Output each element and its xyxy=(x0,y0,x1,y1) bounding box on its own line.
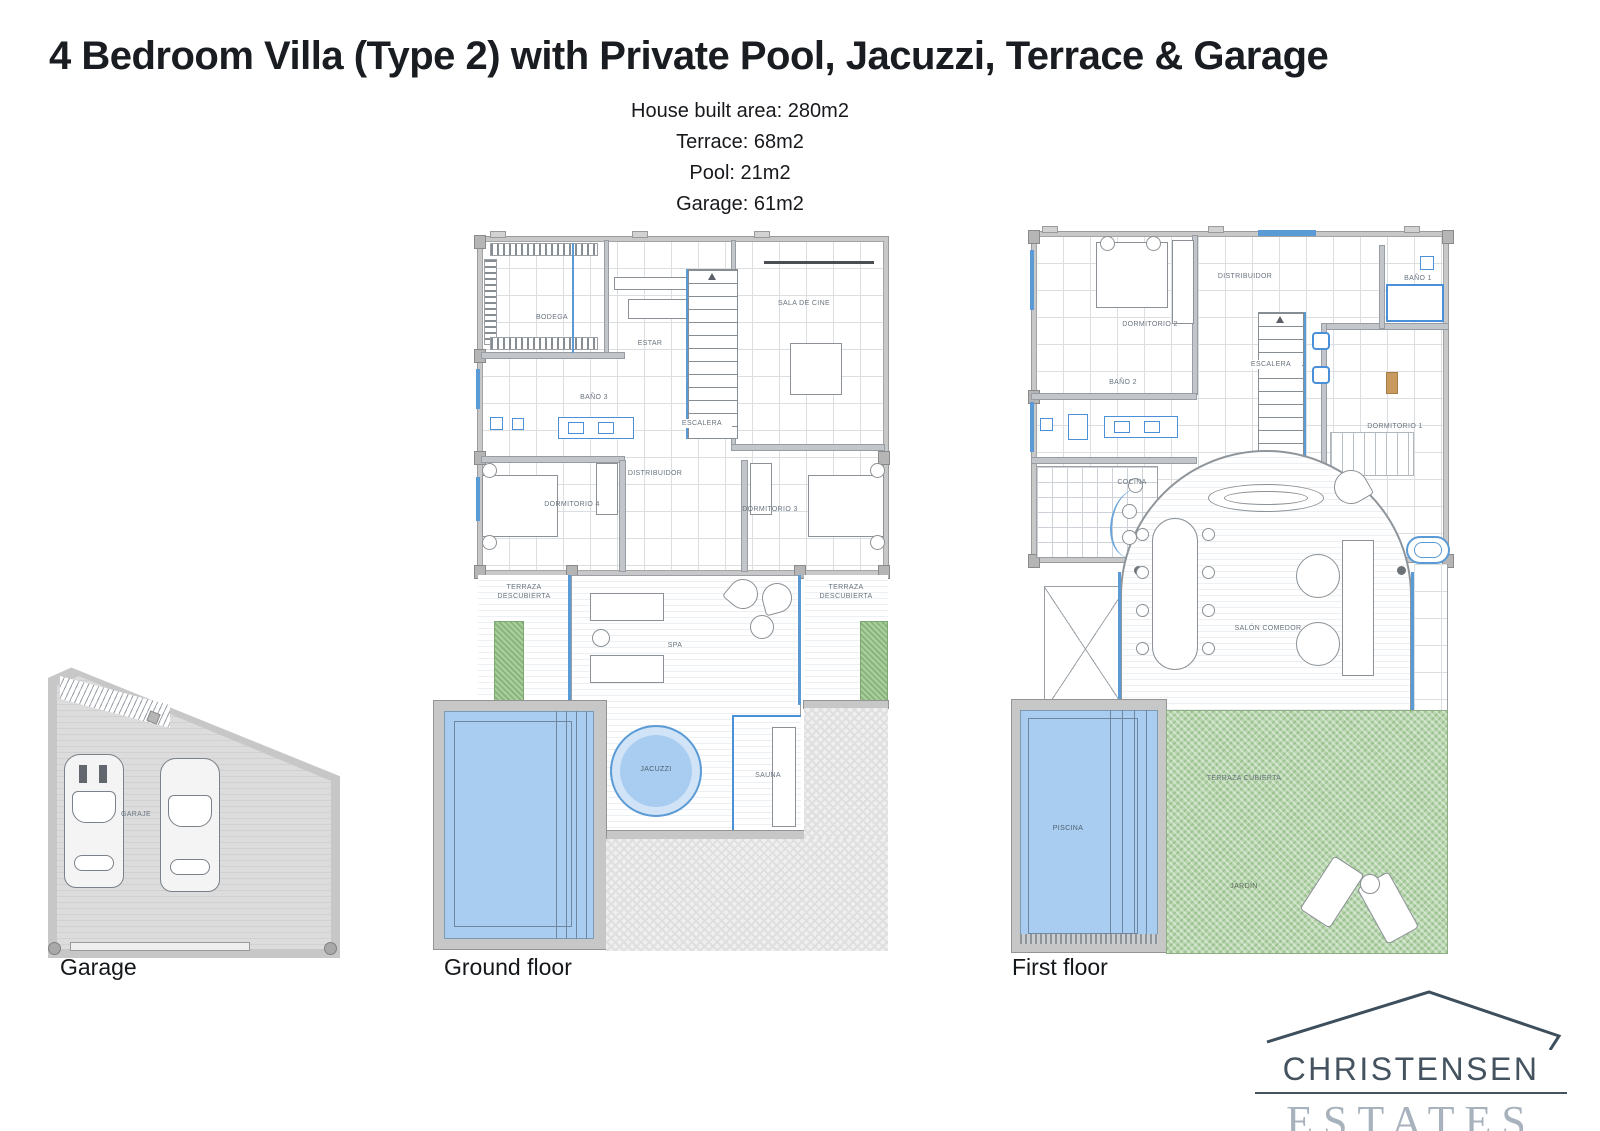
chair xyxy=(1202,566,1215,579)
bidet xyxy=(512,418,524,430)
pool-step xyxy=(1122,710,1123,944)
car-vent xyxy=(79,765,87,783)
room-label: PISCINA xyxy=(1038,824,1098,833)
basin xyxy=(598,422,614,434)
step-platform xyxy=(1330,432,1414,476)
sofa xyxy=(1342,540,1374,676)
sliding-door xyxy=(798,575,801,705)
car-rear-window xyxy=(74,855,114,871)
wine-rack xyxy=(490,243,598,256)
room-label: DORMITORIO 1 xyxy=(1348,422,1442,431)
room-label: SALÓN COMEDOR xyxy=(1220,624,1316,633)
spec-garage: Garage: 61m2 xyxy=(0,189,1480,220)
round-table xyxy=(1296,554,1340,598)
interior-wall xyxy=(1322,324,1448,329)
gf-stairs xyxy=(688,269,738,439)
garage-door xyxy=(70,942,250,951)
floor-plan-sheet: 4 Bedroom Villa (Type 2) with Private Po… xyxy=(0,0,1600,1131)
toilet xyxy=(1312,332,1330,350)
spec-pool: Pool: 21m2 xyxy=(0,158,1480,189)
window xyxy=(1258,230,1316,236)
pillar xyxy=(324,942,337,955)
pool-grate xyxy=(1020,934,1158,944)
interior-wall xyxy=(482,353,624,358)
massage-table xyxy=(590,655,664,683)
pool-step xyxy=(1110,710,1111,944)
fireplace-inner xyxy=(1224,491,1308,505)
car-vent xyxy=(99,765,107,783)
glass-wall xyxy=(1118,572,1121,712)
spec-built-area: House built area: 280m2 xyxy=(0,96,1480,127)
side-table xyxy=(750,615,774,639)
window xyxy=(1030,250,1034,310)
ground-floor-plan: BODEGA ESTAR SALA DE CINE BAÑO 3 ESCALER… xyxy=(432,237,888,955)
wall xyxy=(804,701,888,708)
paving xyxy=(804,708,888,839)
massage-table xyxy=(590,593,664,621)
room-label: ESCALERA xyxy=(672,419,732,428)
room-label: DISTRIBUIDOR xyxy=(1202,272,1288,281)
glass-partition xyxy=(572,243,574,353)
pool-edge xyxy=(454,721,572,927)
wall-tab xyxy=(1208,226,1224,233)
wall-tab xyxy=(754,231,770,238)
stair-rail xyxy=(686,269,688,439)
spec-terrace: Terrace: 68m2 xyxy=(0,127,1480,158)
room-label: BODEGA xyxy=(514,313,590,322)
garage-plan: GARAJE xyxy=(48,660,340,958)
chair xyxy=(1136,642,1149,655)
paving xyxy=(606,839,888,951)
caption-first-floor: First floor xyxy=(1012,954,1108,981)
room-label: JACUZZI xyxy=(626,765,686,774)
basin xyxy=(568,422,584,434)
pillow xyxy=(482,535,497,550)
room-label: SPA xyxy=(654,641,696,650)
first-floor-plan: DISTRIBUIDOR DORMITORIO 2 BAÑO 2 BAÑO 1 … xyxy=(1012,232,1448,955)
chair xyxy=(1136,566,1149,579)
room-label: ESCALERA xyxy=(1240,360,1302,369)
bed xyxy=(1096,242,1168,308)
chair xyxy=(1202,604,1215,617)
stair-arrow xyxy=(708,273,716,280)
brand-name: CHRISTENSEN xyxy=(1255,1051,1567,1088)
skylight-void xyxy=(1044,586,1128,712)
brand-type: ESTATES xyxy=(1255,1096,1567,1131)
room-label: DORMITORIO 4 xyxy=(528,500,616,509)
window xyxy=(1030,402,1034,452)
wardrobe xyxy=(1172,240,1194,324)
stool xyxy=(1122,530,1137,545)
cinema-table xyxy=(790,343,842,395)
caption-garage: Garage xyxy=(60,954,137,981)
pillow xyxy=(870,463,885,478)
wall-tab xyxy=(1042,226,1058,233)
basin xyxy=(1144,421,1160,433)
toilet xyxy=(1040,418,1053,431)
stool xyxy=(1122,504,1137,519)
room-label: DORMITORIO 2 xyxy=(1106,320,1194,329)
bidet xyxy=(1312,366,1330,384)
pillow xyxy=(482,463,497,478)
pool-step xyxy=(586,711,587,939)
brand-logo: CHRISTENSEN ESTATES xyxy=(1255,984,1567,1131)
room-label: TERRAZA CUBIERTA xyxy=(1192,774,1296,783)
side-terrace xyxy=(1414,564,1448,710)
interior-wall xyxy=(1032,394,1196,399)
interior-wall xyxy=(605,241,608,353)
room-label: BAÑO 3 xyxy=(558,393,630,402)
room-label: DORMITORIO 3 xyxy=(726,505,814,514)
spec-list: House built area: 280m2 Terrace: 68m2 Po… xyxy=(0,96,1480,220)
stair-arrow xyxy=(1276,316,1284,323)
column-dot xyxy=(1397,566,1406,575)
pillow xyxy=(870,535,885,550)
garden-table xyxy=(1360,874,1380,894)
brand-rule xyxy=(1255,1092,1567,1094)
room-label: SAUNA xyxy=(738,771,798,780)
room-label: JARDÍN xyxy=(1202,882,1286,891)
roof-icon xyxy=(1255,984,1567,1050)
page-title: 4 Bedroom Villa (Type 2) with Private Po… xyxy=(49,34,1328,79)
room-label: BAÑO 1 xyxy=(1392,274,1444,283)
wall-tab xyxy=(632,231,648,238)
chair xyxy=(1202,642,1215,655)
bench xyxy=(1386,372,1398,394)
car xyxy=(64,754,124,888)
pool-step xyxy=(576,711,577,939)
pillar xyxy=(474,235,486,249)
wall-tab xyxy=(490,231,506,238)
room-label: GARAJE xyxy=(106,810,166,819)
car-rear-window xyxy=(170,859,210,875)
pillow xyxy=(1100,236,1115,251)
bathtub-inner xyxy=(1414,542,1442,558)
chair xyxy=(1136,528,1149,541)
cinema-screen xyxy=(764,261,874,264)
stair-rail xyxy=(1304,312,1306,464)
room-label: COCINA xyxy=(1100,478,1164,487)
pool-step xyxy=(1134,710,1135,944)
interior-wall xyxy=(482,457,624,462)
chair xyxy=(1136,604,1149,617)
pillar xyxy=(1442,230,1454,244)
stool xyxy=(592,629,610,647)
basin xyxy=(1420,256,1434,270)
chair xyxy=(1202,528,1215,541)
pool-step xyxy=(566,711,567,939)
pool-step xyxy=(556,711,557,939)
caption-ground-floor: Ground floor xyxy=(444,954,572,981)
room-label: ESTAR xyxy=(622,339,678,348)
basin xyxy=(1114,421,1130,433)
dining-table xyxy=(1152,518,1198,670)
interior-wall xyxy=(732,445,884,450)
room-label: SALA DE CINE xyxy=(762,299,846,308)
wine-rack xyxy=(484,259,497,345)
shower xyxy=(1068,414,1088,440)
car-windshield xyxy=(168,795,212,827)
room-label: TERRAZA DESCUBIERTA xyxy=(484,583,564,601)
interior-wall xyxy=(1380,246,1384,328)
wall-tab xyxy=(1404,226,1420,233)
shower xyxy=(1386,284,1444,322)
interior-wall xyxy=(1032,458,1196,463)
planter xyxy=(860,621,888,705)
pool-step xyxy=(1146,710,1147,944)
bed xyxy=(808,475,884,537)
ff-stairs xyxy=(1258,312,1304,464)
pillow xyxy=(1146,236,1161,251)
room-label: BAÑO 2 xyxy=(1088,378,1158,387)
interior-wall xyxy=(742,461,747,571)
pillar xyxy=(1028,230,1040,244)
room-label: TERRAZA DESCUBIERTA xyxy=(806,583,886,601)
wine-rack xyxy=(490,337,598,350)
window xyxy=(476,477,480,521)
toilet xyxy=(490,417,503,430)
window xyxy=(476,369,480,409)
planter xyxy=(494,621,524,705)
room-label: DISTRIBUIDOR xyxy=(612,469,698,478)
car xyxy=(160,758,220,892)
